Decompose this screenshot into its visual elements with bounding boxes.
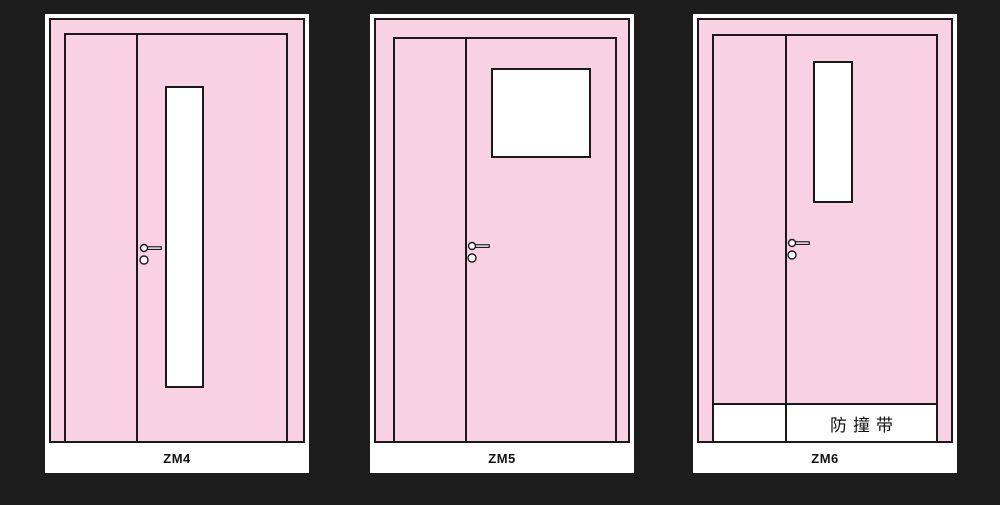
catalog-background: ZM4 ZM5 防撞带 ZM6	[0, 0, 1000, 505]
door-leaf-divider	[136, 33, 138, 443]
door-diagram-zm6: 防撞带 ZM6	[693, 14, 957, 473]
door-handle-icon	[139, 243, 169, 267]
door-handle-icon	[467, 241, 497, 265]
anti-collision-band: 防撞带	[712, 403, 938, 443]
panel-label: ZM4	[45, 443, 309, 473]
door-vision-panel	[813, 61, 853, 203]
panel-label: ZM5	[370, 443, 634, 473]
door-diagram-zm5: ZM5	[370, 14, 634, 473]
door-handle-icon	[787, 238, 817, 262]
panel-label: ZM6	[693, 443, 957, 473]
anti-collision-band-label: 防撞带	[787, 405, 936, 441]
door-diagram-zm4: ZM4	[45, 14, 309, 473]
door-vision-panel	[491, 68, 591, 158]
door-vision-panel	[165, 86, 204, 388]
door-leaf-divider	[465, 37, 467, 443]
